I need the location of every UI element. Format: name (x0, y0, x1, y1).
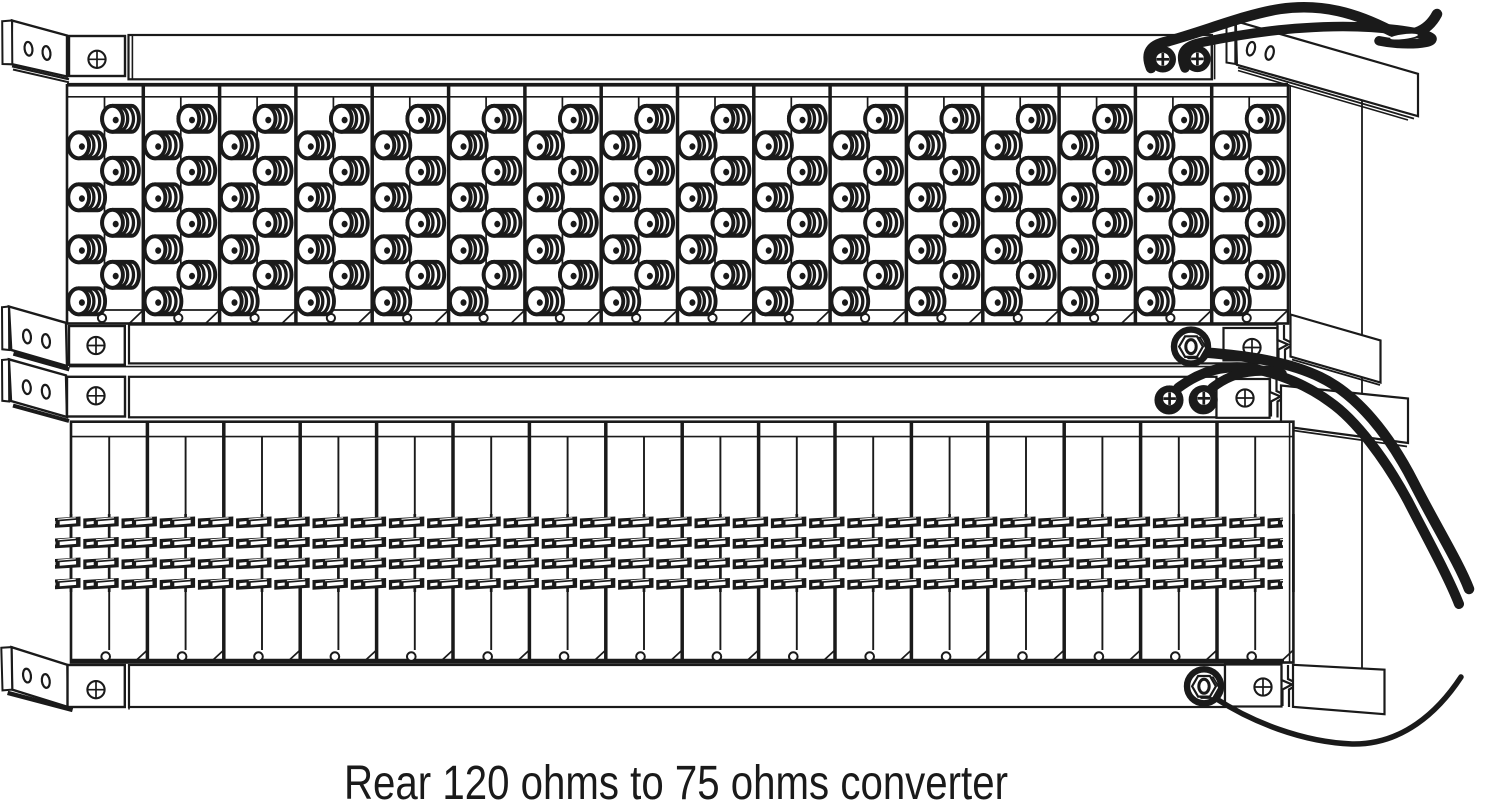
svg-text:Rear 120 ohms to 75 ohms conve: Rear 120 ohms to 75 ohms converter (344, 756, 1008, 805)
